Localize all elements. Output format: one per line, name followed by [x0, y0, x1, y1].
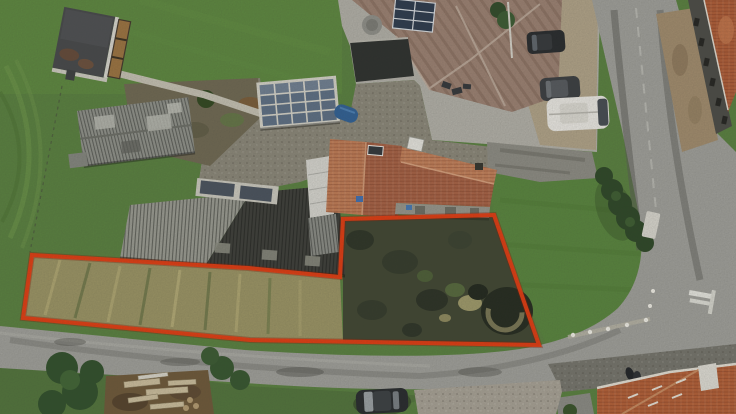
- aerial-photo-frame: [0, 0, 736, 414]
- photo-grain-overlay: [0, 0, 736, 414]
- aerial-photo: [0, 0, 736, 414]
